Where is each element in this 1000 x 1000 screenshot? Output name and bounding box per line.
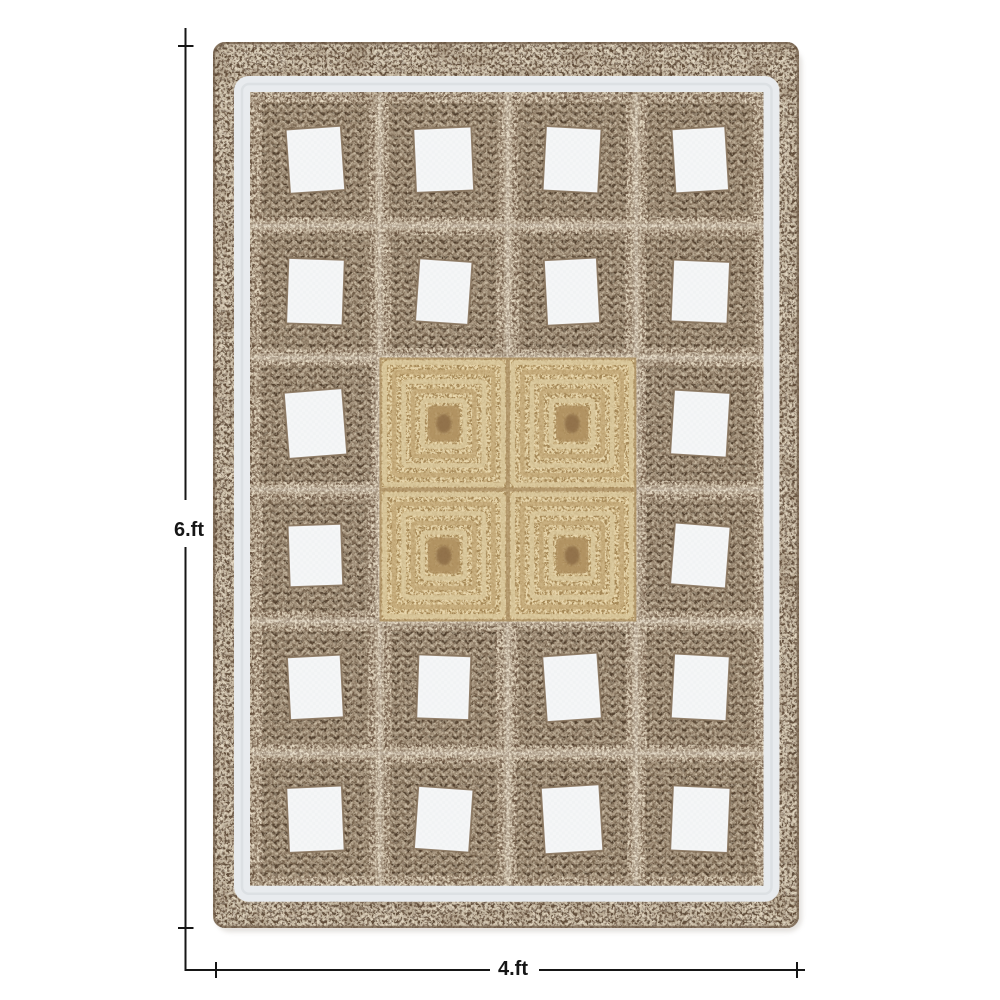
svg-text:6.ft: 6.ft bbox=[174, 519, 204, 541]
svg-text:4.ft: 4.ft bbox=[498, 958, 528, 980]
